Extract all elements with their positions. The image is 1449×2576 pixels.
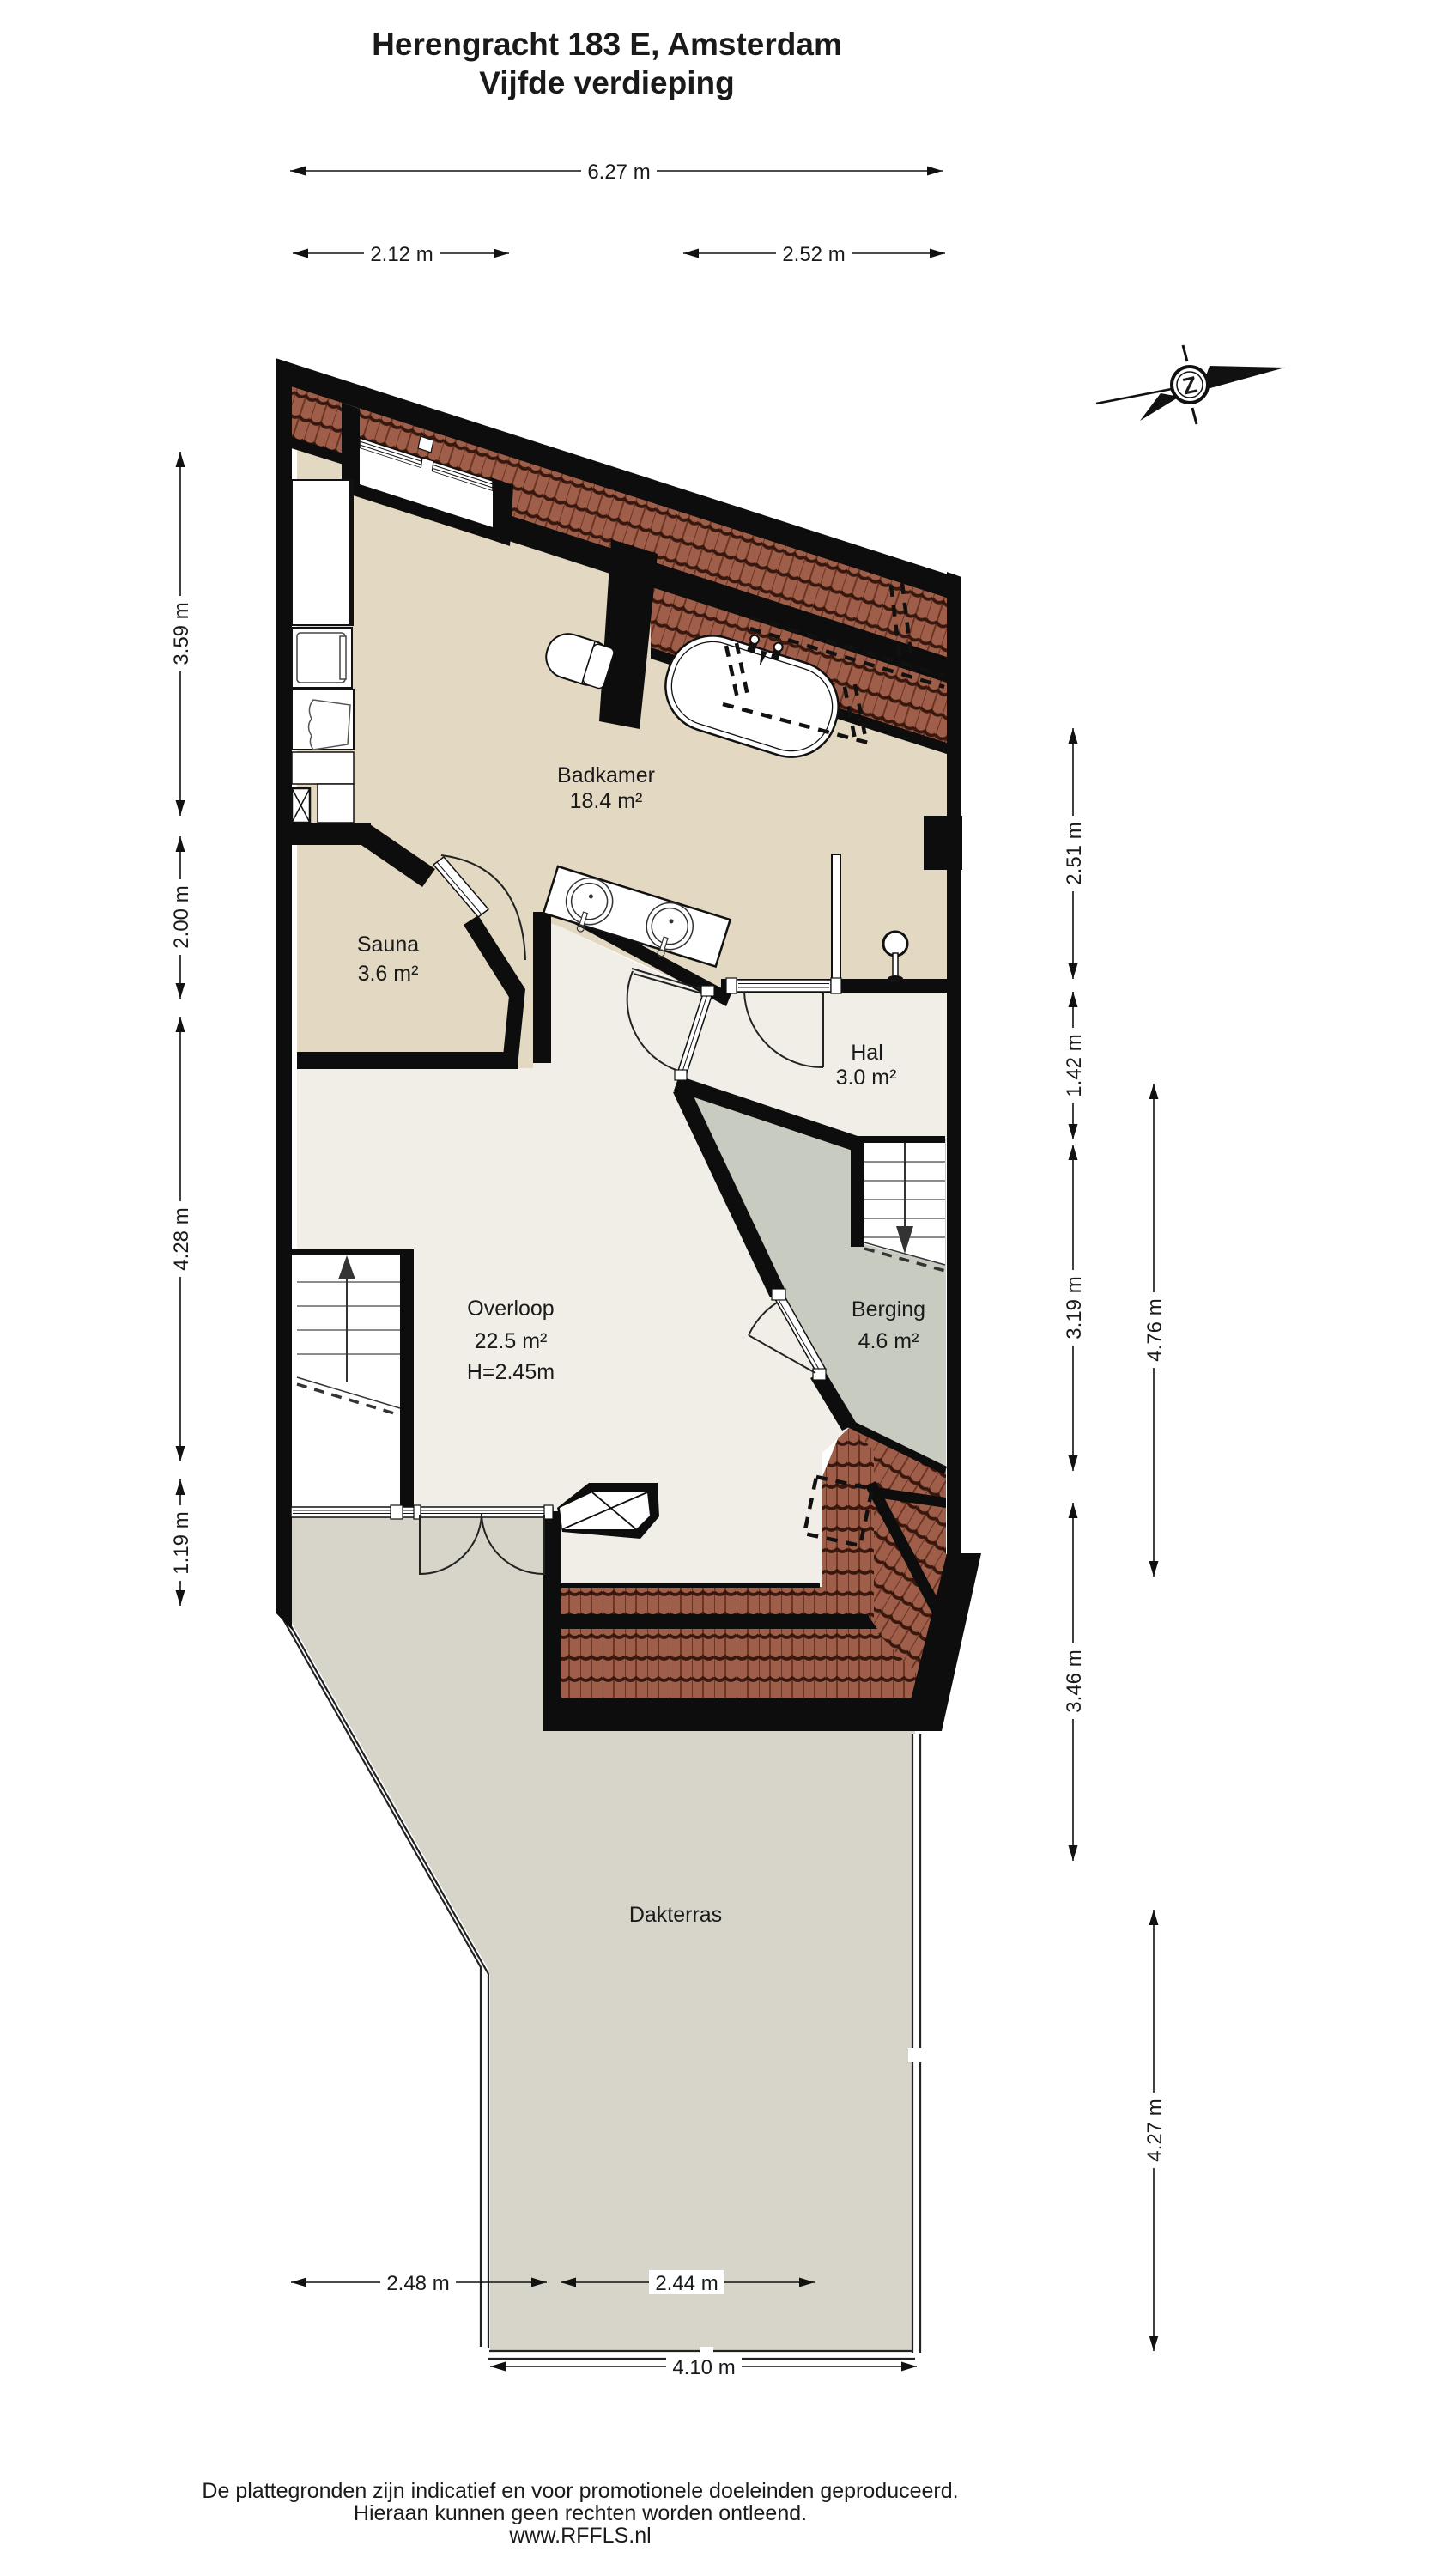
svg-text:Herengracht 183 E, Amsterdam: Herengracht 183 E, Amsterdam	[372, 27, 842, 62]
svg-text:2.12 m: 2.12 m	[370, 243, 433, 266]
svg-text:4.10 m: 4.10 m	[672, 2356, 735, 2379]
svg-text:3.6 m²: 3.6 m²	[358, 962, 419, 986]
svg-text:Vijfde verdieping: Vijfde verdieping	[479, 65, 734, 100]
svg-text:3.0 m²: 3.0 m²	[836, 1066, 897, 1090]
svg-text:Dakterras: Dakterras	[629, 1903, 722, 1927]
svg-text:Hieraan kunnen geen rechten wo: Hieraan kunnen geen rechten worden ontle…	[354, 2501, 807, 2525]
svg-text:4.76 m: 4.76 m	[1143, 1298, 1167, 1361]
svg-text:6.27 m: 6.27 m	[587, 161, 650, 184]
svg-text:2.48 m: 2.48 m	[386, 2272, 449, 2295]
svg-text:Sauna: Sauna	[357, 933, 419, 957]
svg-text:Berging: Berging	[852, 1297, 925, 1321]
svg-text:Overloop: Overloop	[467, 1297, 554, 1321]
svg-text:2.52 m: 2.52 m	[782, 243, 845, 266]
svg-text:3.46 m: 3.46 m	[1063, 1649, 1086, 1712]
svg-text:3.19 m: 3.19 m	[1063, 1276, 1086, 1339]
svg-text:1.19 m: 1.19 m	[170, 1511, 193, 1574]
svg-text:22.5 m²: 22.5 m²	[475, 1329, 548, 1353]
svg-text:4.27 m: 4.27 m	[1143, 2099, 1167, 2161]
svg-text:H=2.45m: H=2.45m	[467, 1360, 555, 1384]
svg-text:Hal: Hal	[851, 1041, 883, 1065]
svg-text:2.44 m: 2.44 m	[655, 2272, 718, 2295]
svg-text:18.4 m²: 18.4 m²	[570, 789, 643, 813]
svg-text:Badkamer: Badkamer	[557, 763, 655, 787]
svg-text:4.28 m: 4.28 m	[170, 1207, 193, 1270]
svg-text:1.42 m: 1.42 m	[1063, 1034, 1086, 1097]
svg-text:3.59 m: 3.59 m	[170, 602, 193, 665]
svg-text:De plattegronden zijn indicati: De plattegronden zijn indicatief en voor…	[202, 2479, 958, 2503]
svg-text:www.RFFLS.nl: www.RFFLS.nl	[508, 2524, 651, 2548]
svg-text:2.00 m: 2.00 m	[170, 885, 193, 948]
svg-text:2.51 m: 2.51 m	[1063, 822, 1086, 884]
svg-text:4.6 m²: 4.6 m²	[858, 1329, 919, 1353]
